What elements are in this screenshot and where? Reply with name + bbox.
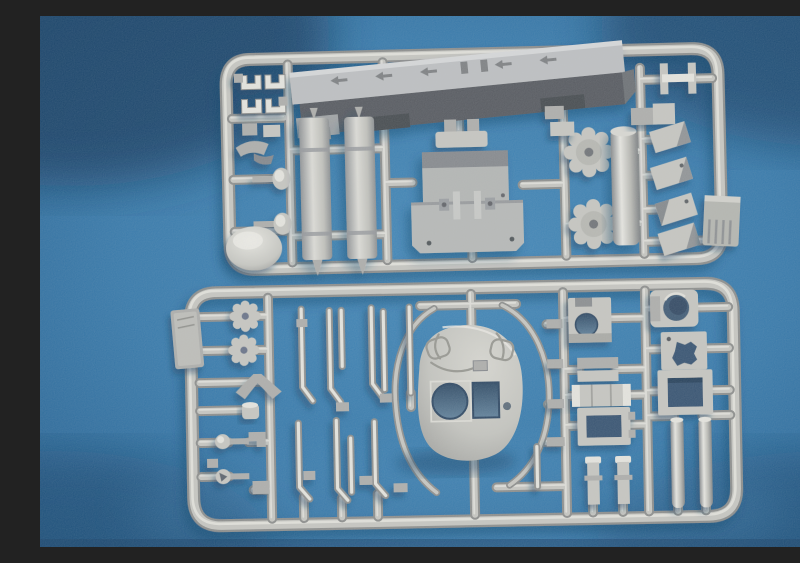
photo-grain-overlay <box>40 16 800 547</box>
photo-canvas <box>40 16 800 547</box>
photo-model-kit-sprues: Photograph of two light-grey injection-m… <box>40 16 800 547</box>
